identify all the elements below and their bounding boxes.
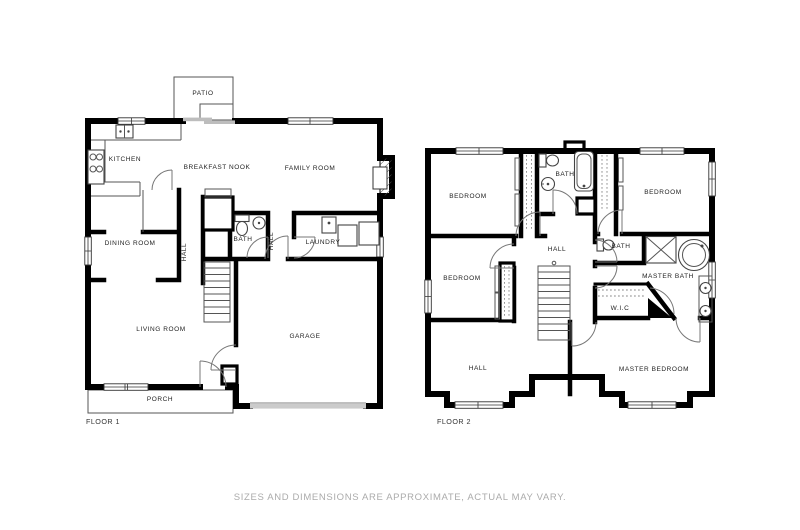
- door-arc: [676, 318, 700, 342]
- room-label-laundry: LAUNDRY: [306, 239, 341, 246]
- room-label-hall-left: HALL: [181, 243, 188, 261]
- room-label-living-room: LIVING ROOM: [136, 326, 185, 333]
- window-icon: [455, 402, 503, 409]
- room-label-bath-top: BATH: [555, 171, 574, 178]
- linen-closet: [577, 198, 595, 214]
- window-icon: [425, 280, 432, 313]
- door-arc: [598, 210, 622, 234]
- floorplan-page: PATIO KITCHEN BREAKFAST NOOK FAMILY ROOM…: [0, 0, 800, 530]
- room-label-dining-room: DINING ROOM: [105, 240, 156, 247]
- room-label-bedroom-top-left: BEDROOM: [449, 193, 486, 200]
- window-icon: [628, 402, 676, 409]
- patio-outline: [174, 77, 233, 120]
- floor2-plan: BEDROOM BATH BEDROOM HALL BEDROOM BATH M…: [425, 142, 716, 426]
- room-label-kitchen: KITCHEN: [109, 156, 141, 163]
- sink-icon: [542, 178, 555, 191]
- room-label-wic: W.I.C: [611, 305, 630, 312]
- laundry-sink-icon: [322, 217, 336, 233]
- stove-icon: [88, 150, 104, 184]
- window-icon: [118, 118, 145, 125]
- stairs-icon: [538, 261, 570, 340]
- floor2-label: FLOOR 2: [437, 417, 471, 426]
- garage-door-icon: [250, 403, 366, 409]
- room-label-master-bedroom: MASTER BEDROOM: [619, 366, 689, 373]
- room-label-master-bath: MASTER BATH: [642, 273, 694, 280]
- bathtub-icon: [575, 152, 594, 192]
- kitchen-sink-icon: [116, 125, 133, 138]
- floor1-plan: PATIO KITCHEN BREAKFAST NOOK FAMILY ROOM…: [85, 77, 392, 426]
- wic-shelving: [598, 290, 644, 296]
- fireplace-icon: [373, 158, 392, 196]
- window-icon: [709, 162, 716, 196]
- room-label-hall-right: HALL: [268, 232, 275, 250]
- shower-icon: [646, 237, 676, 264]
- room-label-porch: PORCH: [147, 396, 173, 403]
- room-label-breakfast-nook: BREAKFAST NOOK: [184, 164, 251, 171]
- toilet-icon: [235, 215, 249, 236]
- corner-tub-icon: [679, 240, 710, 271]
- closet-mid-left: [495, 263, 514, 321]
- room-label-bath: BATH: [233, 236, 252, 243]
- closet-box: [203, 197, 233, 230]
- disclaimer-text: SIZES AND DIMENSIONS ARE APPROXIMATE, AC…: [234, 492, 567, 503]
- closet-top-right: [602, 155, 623, 210]
- room-label-family-room: FAMILY ROOM: [285, 165, 336, 172]
- room-label-patio: PATIO: [192, 90, 213, 97]
- room-label-bedroom-mid-left: BEDROOM: [443, 275, 480, 282]
- stairs-icon: [204, 262, 230, 322]
- sink-icon: [253, 217, 265, 229]
- room-label-garage: GARAGE: [289, 333, 320, 340]
- floor1-label: FLOOR 1: [86, 417, 120, 426]
- window-icon: [456, 148, 503, 155]
- door-arc: [572, 322, 596, 346]
- window-icon: [104, 384, 148, 391]
- door-arc: [553, 190, 577, 214]
- room-label-bedroom-top-right: BEDROOM: [644, 189, 681, 196]
- sliding-door-icon: [183, 118, 235, 124]
- room-label-hall-lower: HALL: [469, 365, 487, 372]
- washer-icon: [338, 225, 357, 246]
- window-icon: [288, 118, 333, 125]
- window-icon: [640, 148, 684, 155]
- door-arc: [152, 170, 172, 190]
- room-label-bath-small: BATH: [611, 243, 630, 250]
- window-icon: [85, 237, 92, 265]
- room-label-hall-upper: HALL: [548, 246, 566, 253]
- dryer-icon: [359, 222, 379, 245]
- floorplan-drawing: PATIO KITCHEN BREAKFAST NOOK FAMILY ROOM…: [0, 0, 800, 530]
- entry-closet: [222, 366, 237, 384]
- toilet-icon: [539, 154, 559, 167]
